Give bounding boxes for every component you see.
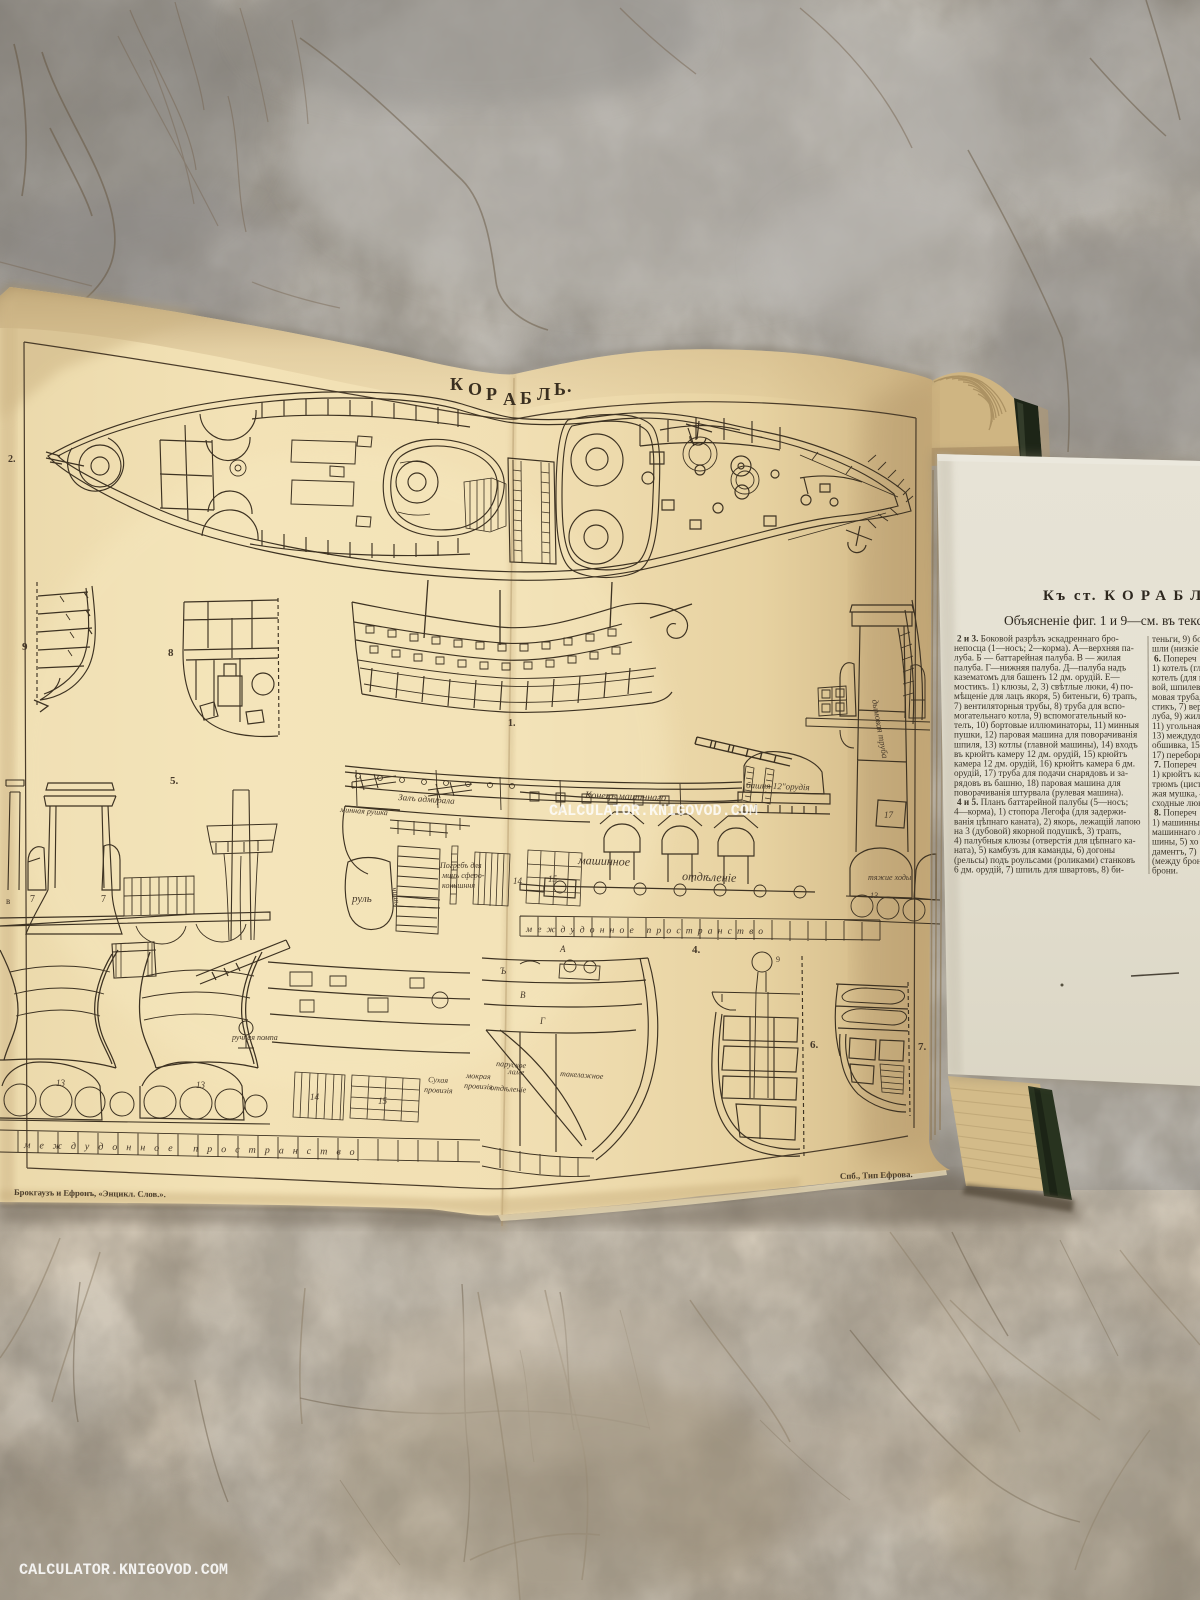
svg-text:CALCULATOR.KNIGOVOD.COM: CALCULATOR.KNIGOVOD.COM — [549, 802, 758, 820]
svg-text:CALCULATOR.KNIGOVOD.COM: CALCULATOR.KNIGOVOD.COM — [19, 1561, 228, 1579]
